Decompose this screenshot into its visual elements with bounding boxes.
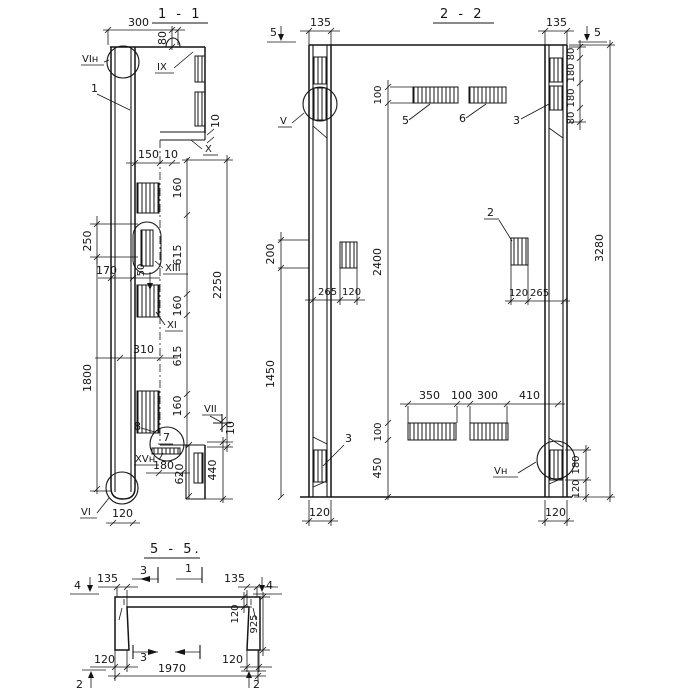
embedded-plate <box>511 238 528 265</box>
dim-180b: 180 <box>566 88 577 107</box>
embedded-strip <box>413 87 458 103</box>
section-2-2-title: 2 - 2 <box>440 7 485 22</box>
embedded-plate <box>314 88 327 120</box>
cut-mark-2-left: 2 <box>76 678 83 691</box>
cut-mark-1-top: 1 <box>185 562 192 575</box>
node-label-xv-n: XVн <box>135 454 155 465</box>
dim-265-left: 265 <box>318 287 337 298</box>
embedded-strip <box>470 423 508 440</box>
dim-120-br: 120 <box>571 479 582 498</box>
dim-160b: 160 <box>171 296 184 317</box>
dim-450: 450 <box>371 458 384 479</box>
dim-310: 310 <box>133 343 154 356</box>
dim-300: 300 <box>477 389 498 402</box>
dim-1450: 1450 <box>264 360 277 388</box>
dim-120-right: 120 <box>509 288 528 299</box>
dim-300: 300 <box>128 16 149 29</box>
dim-265-right: 265 <box>530 288 549 299</box>
embedded-plates-2-2 <box>314 57 563 482</box>
part-label-3-bottom: 3 <box>345 432 352 445</box>
embedded-plate <box>152 448 180 454</box>
dim-180-br: 180 <box>571 455 582 474</box>
dim-100-top: 100 <box>373 85 384 104</box>
embedded-plate <box>314 57 327 84</box>
node-label-xiii: XIII <box>165 263 181 274</box>
cut-mark-5-right: 5 <box>594 26 601 39</box>
dim-80: 80 <box>156 31 169 45</box>
dim-135-right: 135 <box>224 572 245 585</box>
technical-drawing: 1 - 1 <box>0 0 700 700</box>
section-1-1: 1 - 1 <box>80 7 237 526</box>
embedded-plate <box>550 450 563 480</box>
dim-440: 440 <box>206 460 219 481</box>
dim-80a: 80 <box>566 48 577 61</box>
part-label-8: 8 <box>134 420 141 433</box>
dim-135-left: 135 <box>310 16 331 29</box>
dim-410: 410 <box>519 389 540 402</box>
cut-mark-4-right: 4 <box>266 579 273 592</box>
dim-350: 350 <box>419 389 440 402</box>
part-label-6: 6 <box>459 112 466 125</box>
node-label-v: V <box>280 116 287 127</box>
dim-135-left: 135 <box>97 572 118 585</box>
dim-100: 100 <box>451 389 472 402</box>
cut-mark-3-bottom: 3 <box>140 651 147 664</box>
dim-135-right: 135 <box>546 16 567 29</box>
embedded-plate <box>137 183 159 213</box>
drawing-sheet: 1 - 1 <box>0 0 700 700</box>
node-label-ix: IX <box>157 62 167 73</box>
embedded-plate <box>550 58 563 82</box>
dim-120-foot-left: 120 <box>309 506 330 519</box>
dim-120-left: 120 <box>342 287 361 298</box>
dim-180: 180 <box>153 459 174 472</box>
cut-mark-3-top: 3 <box>140 564 147 577</box>
dim-160c: 160 <box>171 396 184 417</box>
part-label-2: 2 <box>487 206 494 219</box>
embedded-plate <box>314 450 327 482</box>
dimensions-5-5: 4 4 135 135 3 1 <box>70 562 282 691</box>
dim-2250: 2250 <box>211 271 224 299</box>
embedded-strip <box>469 87 506 103</box>
dim-1800: 1800 <box>81 364 94 392</box>
cut-mark-2-right: 2 <box>253 678 260 691</box>
part-label-5: 5 <box>402 114 409 127</box>
dim-120: 120 <box>112 507 133 520</box>
node-label-vi-n: VIн <box>82 54 98 65</box>
section-2-2: 2 - 2 <box>264 7 615 526</box>
node-label-vii: VII <box>204 404 217 415</box>
embedded-strip <box>408 423 456 440</box>
dim-10b: 10 <box>164 148 178 161</box>
node-circles-2-2 <box>303 87 575 479</box>
embedded-plate <box>550 86 563 110</box>
dim-10c: 10 <box>224 421 237 435</box>
dim-1970: 1970 <box>158 662 186 675</box>
section-1-1-title: 1 - 1 <box>158 7 203 22</box>
dim-100-bot: 100 <box>373 422 384 441</box>
node-label-v-n: Vн <box>494 466 507 477</box>
dim-80b: 80 <box>566 112 577 125</box>
embedded-plate <box>195 56 205 82</box>
dim-925: 925 <box>249 614 260 633</box>
dim-620: 620 <box>173 464 186 485</box>
dim-250: 250 <box>81 231 94 252</box>
dim-120-bottom-left: 120 <box>94 653 115 666</box>
dim-10-step: 10 <box>209 114 222 128</box>
dim-160a: 160 <box>171 178 184 199</box>
dim-120-foot-right: 120 <box>545 506 566 519</box>
dim-170: 170 <box>96 264 117 277</box>
cut-mark-5-left: 5 <box>270 26 277 39</box>
section-5-5: 5 - 5. 4 4 135 135 <box>70 542 282 691</box>
dim-120-flange: 120 <box>230 604 241 623</box>
part-label-3-top: 3 <box>513 114 520 127</box>
node-label-xi: XI <box>167 320 177 331</box>
embedded-plate <box>141 230 153 266</box>
dim-180a: 180 <box>566 63 577 82</box>
embedded-plate <box>194 453 203 483</box>
part-label-7: 7 <box>163 431 170 444</box>
dim-50: 50 <box>136 264 147 277</box>
embedded-plate <box>340 242 357 268</box>
cut-mark-4-left: 4 <box>74 579 81 592</box>
node-label-x: X <box>205 144 212 155</box>
dim-120-bottom-right: 120 <box>222 653 243 666</box>
embedded-plate <box>137 285 159 317</box>
dim-200: 200 <box>264 244 277 265</box>
dim-615b: 615 <box>171 346 184 367</box>
dim-2400: 2400 <box>371 248 384 276</box>
node-circle-vi-n <box>107 46 139 78</box>
node-label-vi: VI <box>81 507 91 518</box>
dim-3280: 3280 <box>593 234 606 262</box>
section-5-5-title: 5 - 5. <box>150 542 202 557</box>
dim-150: 150 <box>138 148 159 161</box>
part-label-1: 1 <box>91 82 98 95</box>
embedded-plate <box>195 92 205 126</box>
